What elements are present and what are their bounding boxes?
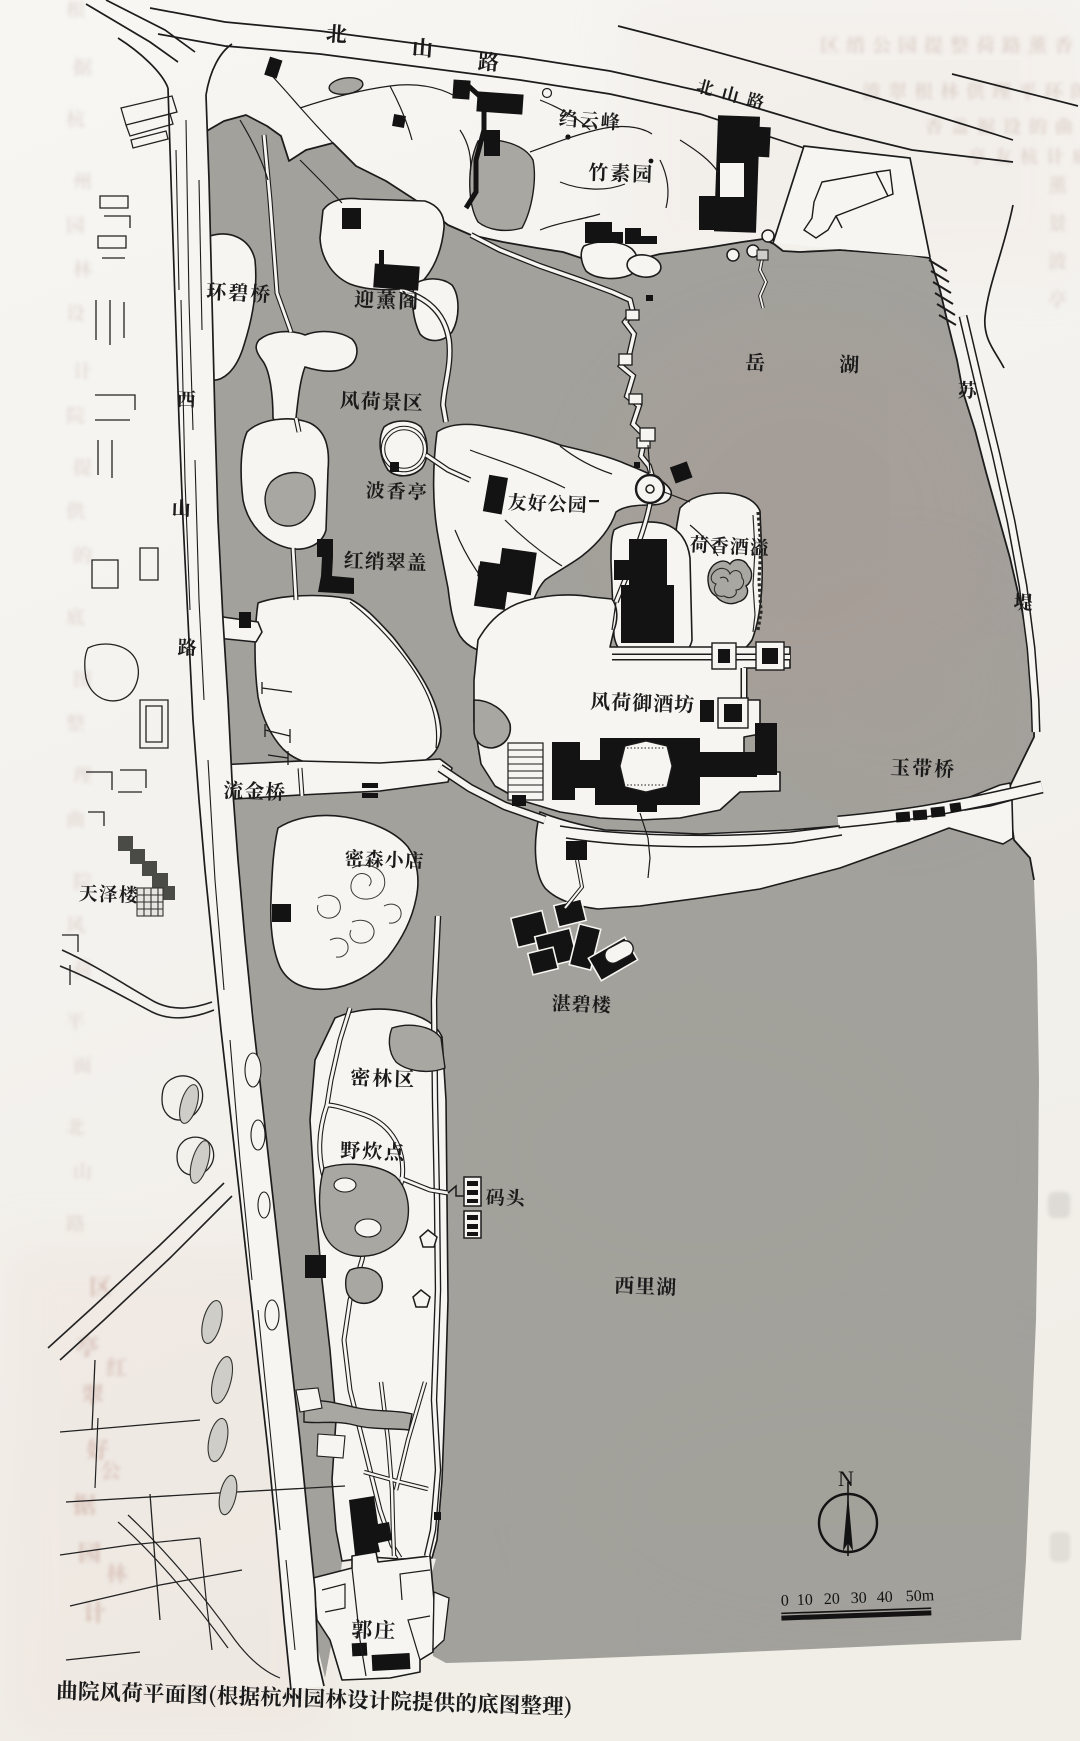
svg-text:N: N (838, 1466, 854, 1491)
svg-text:0: 0 (781, 1592, 790, 1609)
svg-text:30: 30 (850, 1590, 867, 1608)
svg-text:50m: 50m (905, 1587, 935, 1605)
svg-text:20: 20 (823, 1591, 840, 1609)
svg-text:40: 40 (876, 1589, 893, 1607)
svg-text:10: 10 (797, 1591, 814, 1609)
